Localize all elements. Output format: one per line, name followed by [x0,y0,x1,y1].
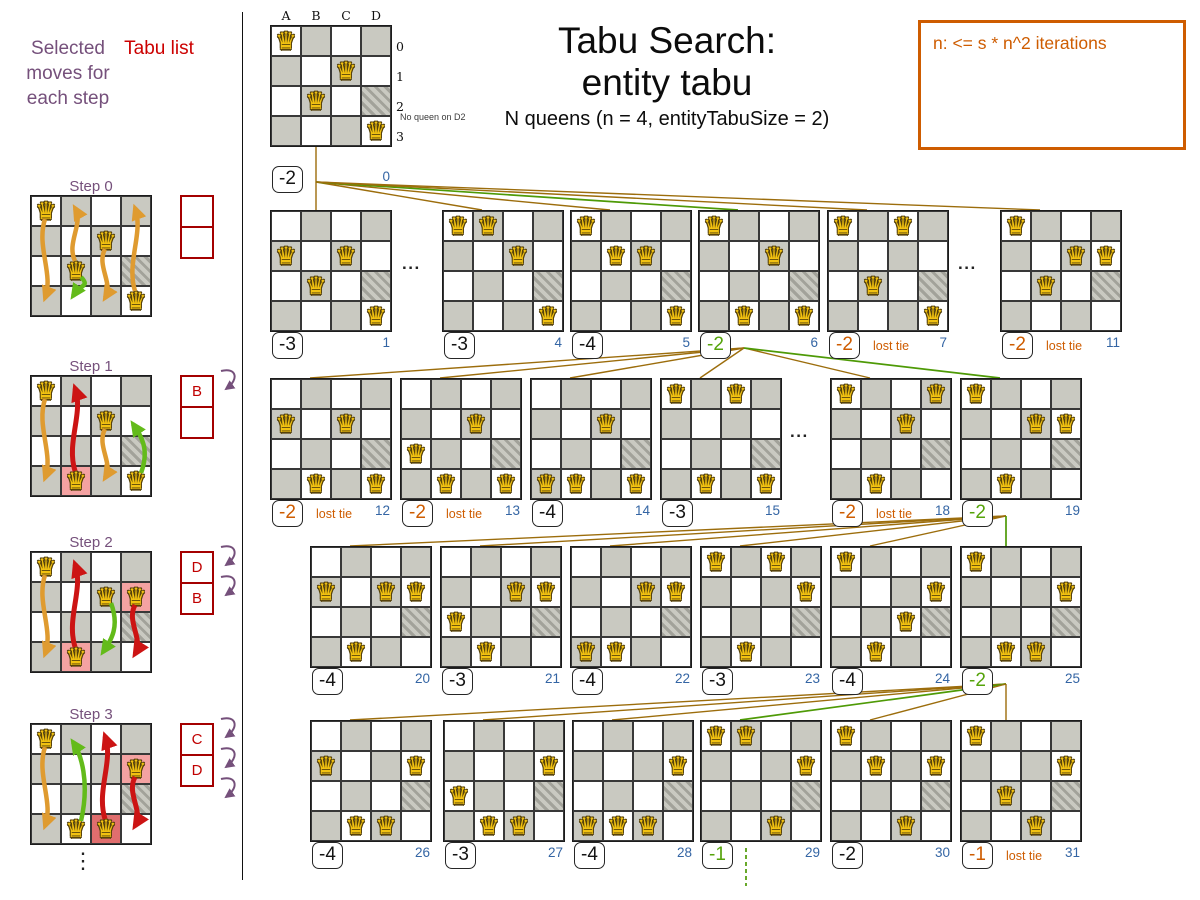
queen-icon: ♛ [605,640,627,664]
queen-icon: ♛ [865,640,887,664]
board-cell: ♛ [121,582,151,612]
solution-board-15: ♛♛♛♛ [660,378,782,500]
board-cell: ♛ [921,379,951,409]
board-cell [301,116,331,146]
queen-icon: ♛ [125,585,147,609]
queen-icon: ♛ [305,89,327,113]
tabu-list-box: DB [180,551,214,615]
board-cell [761,751,791,781]
board-index: 21 [518,671,560,686]
lost-tie-label: lost tie [1006,849,1042,863]
board-cell [1051,721,1081,751]
board-index: 18 [908,503,950,518]
board-cell [891,751,921,781]
board-cell [271,86,301,116]
board-cell: ♛ [501,577,531,607]
queen-icon: ♛ [538,754,560,778]
board-cell: ♛ [441,607,471,637]
board-cell [121,552,151,582]
board-cell [921,637,951,667]
solution-board-4: ♛♛♛♛ [442,210,564,332]
queen-icon: ♛ [795,754,817,778]
queen-icon: ♛ [832,214,854,238]
board-cell [331,86,361,116]
board-cell [861,577,891,607]
board-cell [761,637,791,667]
board-cell [861,811,891,841]
board-cell: ♛ [603,811,633,841]
queen-icon: ♛ [35,727,57,751]
board-cell [961,409,991,439]
queen-icon: ♛ [835,724,857,748]
board-index: 1 [348,335,390,350]
queen-icon: ♛ [495,472,517,496]
hatched-tabu-cell [918,271,948,301]
queen-icon: ♛ [892,214,914,238]
board-cell [31,612,61,642]
board-cell [441,577,471,607]
board-cell [371,637,401,667]
board-cell [371,781,401,811]
board-cell [918,211,948,241]
queen-icon: ♛ [507,244,529,268]
board-cell [831,751,861,781]
board-cell: ♛ [888,211,918,241]
board-index: 13 [478,503,520,518]
hatched-tabu-cell [1051,439,1081,469]
tree-gap-ellipsis: ... [402,254,421,274]
board-cell [441,547,471,577]
board-cell [503,301,533,331]
queen-icon: ♛ [607,814,629,838]
board-cell: ♛ [661,379,691,409]
queen-icon: ♛ [605,244,627,268]
board-cell [474,751,504,781]
board-cell: ♛ [1021,409,1051,439]
board-cell [504,751,534,781]
board-cell [891,469,921,499]
board-cell [461,379,491,409]
board-cell [503,211,533,241]
score-badge: -2 [962,500,993,527]
board-cell [831,469,861,499]
board-cell [473,241,503,271]
board-cell: ♛ [61,466,91,496]
root-row-label: 0 [396,39,414,54]
queen-icon: ♛ [478,814,500,838]
board-cell [474,781,504,811]
board-index: 28 [650,845,692,860]
tabu-list-entry: C [182,725,212,756]
hatched-tabu-cell [791,781,821,811]
step-board-2: ♛♛♛♛ [30,551,152,673]
board-cell [331,26,361,56]
board-cell [531,547,561,577]
board-cell: ♛ [401,439,431,469]
board-cell [503,271,533,301]
queen-icon: ♛ [447,214,469,238]
board-cell [661,469,691,499]
board-cell [699,301,729,331]
board-cell: ♛ [571,637,601,667]
board-cell [31,582,61,612]
board-cell: ♛ [271,241,301,271]
hatched-tabu-cell [361,271,391,301]
board-cell: ♛ [341,637,371,667]
queen-icon: ♛ [995,472,1017,496]
board-cell [91,612,121,642]
queen-icon: ♛ [375,814,397,838]
hatched-tabu-cell [1051,607,1081,637]
board-cell: ♛ [751,469,781,499]
board-cell [121,814,151,844]
hatched-tabu-cell [531,607,561,637]
board-cell: ♛ [701,547,731,577]
hatched-tabu-cell [401,607,431,637]
queen-icon: ♛ [405,442,427,466]
board-cell: ♛ [633,811,663,841]
board-cell [858,301,888,331]
board-cell [1021,781,1051,811]
board-cell: ♛ [729,301,759,331]
board-cell [1031,241,1061,271]
board-cell [888,271,918,301]
board-cell: ♛ [361,116,391,146]
board-cell [331,439,361,469]
board-cell [729,271,759,301]
board-cell: ♛ [631,577,661,607]
board-cell [61,784,91,814]
queen-icon: ♛ [125,757,147,781]
board-cell [311,721,341,751]
board-cell [431,379,461,409]
hatched-tabu-cell [661,271,691,301]
board-cell [331,301,361,331]
diagram-canvas: Selected moves for each step Tabu list ⋮… [0,0,1200,900]
board-cell: ♛ [601,637,631,667]
board-cell: ♛ [861,637,891,667]
board-index: 31 [1038,845,1080,860]
queen-icon: ♛ [475,640,497,664]
board-cell [91,754,121,784]
root-column-label: D [361,8,391,23]
solution-board-12: ♛♛♛♛ [270,378,392,500]
board-index: 30 [908,845,950,860]
board-cell [661,409,691,439]
board-cell [31,466,61,496]
board-cell [361,56,391,86]
board-cell [371,607,401,637]
hatched-tabu-cell [751,439,781,469]
board-cell [491,379,521,409]
lost-tie-label: lost tie [316,507,352,521]
tree-gap-ellipsis: ... [790,422,809,442]
board-cell [918,241,948,271]
board-cell [861,379,891,409]
queen-icon: ♛ [735,724,757,748]
hatched-tabu-cell [791,607,821,637]
board-cell [361,26,391,56]
board-cell [1051,637,1081,667]
board-cell [61,754,91,784]
board-cell [571,577,601,607]
queen-icon: ♛ [665,304,687,328]
board-cell [471,547,501,577]
board-cell [921,721,951,751]
hatched-tabu-cell [361,439,391,469]
board-cell: ♛ [341,811,371,841]
tree-edge [744,348,1000,378]
board-index: 12 [348,503,390,518]
board-cell: ♛ [31,724,61,754]
board-cell [891,439,921,469]
solution-board-22: ♛♛♛♛ [570,546,692,668]
board-cell [271,301,301,331]
queen-icon: ♛ [965,724,987,748]
queen-icon: ♛ [305,274,327,298]
board-cell [1021,721,1051,751]
score-badge: -2 [832,842,863,869]
board-cell: ♛ [531,469,561,499]
queen-icon: ♛ [925,580,947,604]
queen-icon: ♛ [1025,814,1047,838]
board-cell [961,577,991,607]
board-cell [701,577,731,607]
board-cell [474,721,504,751]
hatched-tabu-cell [789,271,819,301]
board-cell: ♛ [663,751,693,781]
board-cell [401,547,431,577]
queen-icon: ♛ [575,640,597,664]
board-cell [361,409,391,439]
board-cell [533,211,563,241]
board-cell [31,784,61,814]
board-cell: ♛ [503,241,533,271]
queen-icon: ♛ [667,754,689,778]
board-cell [828,271,858,301]
board-cell [961,811,991,841]
board-cell [271,439,301,469]
board-cell [301,211,331,241]
board-cell [401,721,431,751]
board-cell: ♛ [534,751,564,781]
queen-icon: ♛ [703,214,725,238]
board-cell: ♛ [1021,811,1051,841]
queen-icon: ♛ [35,379,57,403]
board-cell [761,607,791,637]
queen-icon: ♛ [445,610,467,634]
board-cell [561,409,591,439]
board-cell [789,211,819,241]
queen-icon: ♛ [305,472,327,496]
board-cell [91,642,121,672]
queen-icon: ♛ [625,472,647,496]
queen-icon: ♛ [1025,412,1047,436]
solution-board-29: ♛♛♛♛ [700,720,822,842]
board-cell [341,751,371,781]
board-cell [573,721,603,751]
queen-icon: ♛ [895,814,917,838]
board-cell [444,751,474,781]
board-cell: ♛ [991,637,1021,667]
step-board-1: ♛♛♛♛ [30,375,152,497]
queen-icon: ♛ [925,382,947,406]
board-cell [663,811,693,841]
board-cell [591,439,621,469]
queen-icon: ♛ [375,580,397,604]
board-cell: ♛ [301,86,331,116]
queen-icon: ♛ [595,412,617,436]
tabu-list-entry: D [182,553,212,584]
board-cell [491,409,521,439]
hatched-tabu-cell [921,781,951,811]
solution-board-1: ♛♛♛♛ [270,210,392,332]
board-cell [401,409,431,439]
board-cell [831,811,861,841]
board-cell [961,439,991,469]
board-cell [991,607,1021,637]
queen-icon: ♛ [95,817,117,841]
board-cell: ♛ [331,56,361,86]
score-badge: -2 [832,500,863,527]
board-cell: ♛ [444,781,474,811]
board-cell [571,301,601,331]
board-index: 0 [348,169,390,184]
queen-icon: ♛ [793,304,815,328]
board-cell [631,271,661,301]
board-cell [31,226,61,256]
board-cell: ♛ [691,469,721,499]
board-cell [759,211,789,241]
step-label: Step 0 [30,178,152,195]
board-cell: ♛ [573,811,603,841]
queen-icon: ♛ [405,754,427,778]
board-cell: ♛ [91,226,121,256]
queen-icon: ♛ [565,472,587,496]
board-cell [921,469,951,499]
board-cell: ♛ [1091,241,1121,271]
board-cell: ♛ [311,751,341,781]
board-cell [828,301,858,331]
board-cell [1001,301,1031,331]
board-cell [121,406,151,436]
board-cell [91,784,121,814]
board-cell [789,241,819,271]
board-cell [443,241,473,271]
board-cell [1021,439,1051,469]
board-cell: ♛ [789,301,819,331]
board-cell [401,469,431,499]
queen-icon: ♛ [865,754,887,778]
queen-icon: ♛ [925,754,947,778]
board-cell [991,379,1021,409]
board-cell [888,301,918,331]
queen-icon: ♛ [705,550,727,574]
board-cell [603,721,633,751]
board-cell [861,721,891,751]
board-cell [1061,211,1091,241]
board-cell [831,439,861,469]
queen-icon: ♛ [95,409,117,433]
board-cell [991,577,1021,607]
board-index: 23 [778,671,820,686]
queen-icon: ♛ [345,640,367,664]
board-cell [731,577,761,607]
board-cell [1091,211,1121,241]
board-cell [573,781,603,811]
board-cell [731,547,761,577]
board-cell [504,781,534,811]
board-cell: ♛ [461,409,491,439]
board-cell [471,607,501,637]
score-badge: -4 [312,668,343,695]
tabu-list-entry: D [182,756,212,785]
board-cell [121,226,151,256]
queen-icon: ♛ [335,59,357,83]
board-index: 26 [388,845,430,860]
board-cell [443,271,473,301]
board-cell [603,751,633,781]
board-cell: ♛ [891,811,921,841]
queen-icon: ♛ [65,469,87,493]
queen-icon: ♛ [577,814,599,838]
board-index: 19 [1038,503,1080,518]
board-cell: ♛ [271,26,301,56]
board-cell [661,439,691,469]
board-cell [961,637,991,667]
board-cell [444,811,474,841]
board-cell [371,721,401,751]
solution-board-25: ♛♛♛♛ [960,546,1082,668]
queen-icon: ♛ [575,214,597,238]
board-cell: ♛ [533,301,563,331]
board-cell: ♛ [761,547,791,577]
board-cell: ♛ [661,301,691,331]
board-cell [591,469,621,499]
board-cell [1021,469,1051,499]
solution-board-19: ♛♛♛♛ [960,378,1082,500]
board-cell [991,811,1021,841]
queen-icon: ♛ [965,382,987,406]
queen-icon: ♛ [1095,244,1117,268]
board-cell: ♛ [831,547,861,577]
board-cell [891,547,921,577]
board-cell [371,751,401,781]
score-badge: -2 [272,166,303,193]
board-cell: ♛ [361,469,391,499]
board-cell [731,751,761,781]
board-cell [961,469,991,499]
board-cell [341,547,371,577]
queen-icon: ♛ [35,555,57,579]
hatched-tabu-cell [121,784,151,814]
queen-icon: ♛ [995,784,1017,808]
board-cell: ♛ [791,751,821,781]
queen-icon: ♛ [725,382,747,406]
board-cell [91,256,121,286]
solution-board-30: ♛♛♛♛ [830,720,952,842]
queen-icon: ♛ [365,472,387,496]
board-cell [831,781,861,811]
board-cell [921,811,951,841]
board-cell: ♛ [491,469,521,499]
score-badge: -2 [700,332,731,359]
board-index: 25 [1038,671,1080,686]
board-cell: ♛ [331,241,361,271]
board-cell [633,781,663,811]
solution-board-6: ♛♛♛♛ [698,210,820,332]
board-cell [1051,379,1081,409]
